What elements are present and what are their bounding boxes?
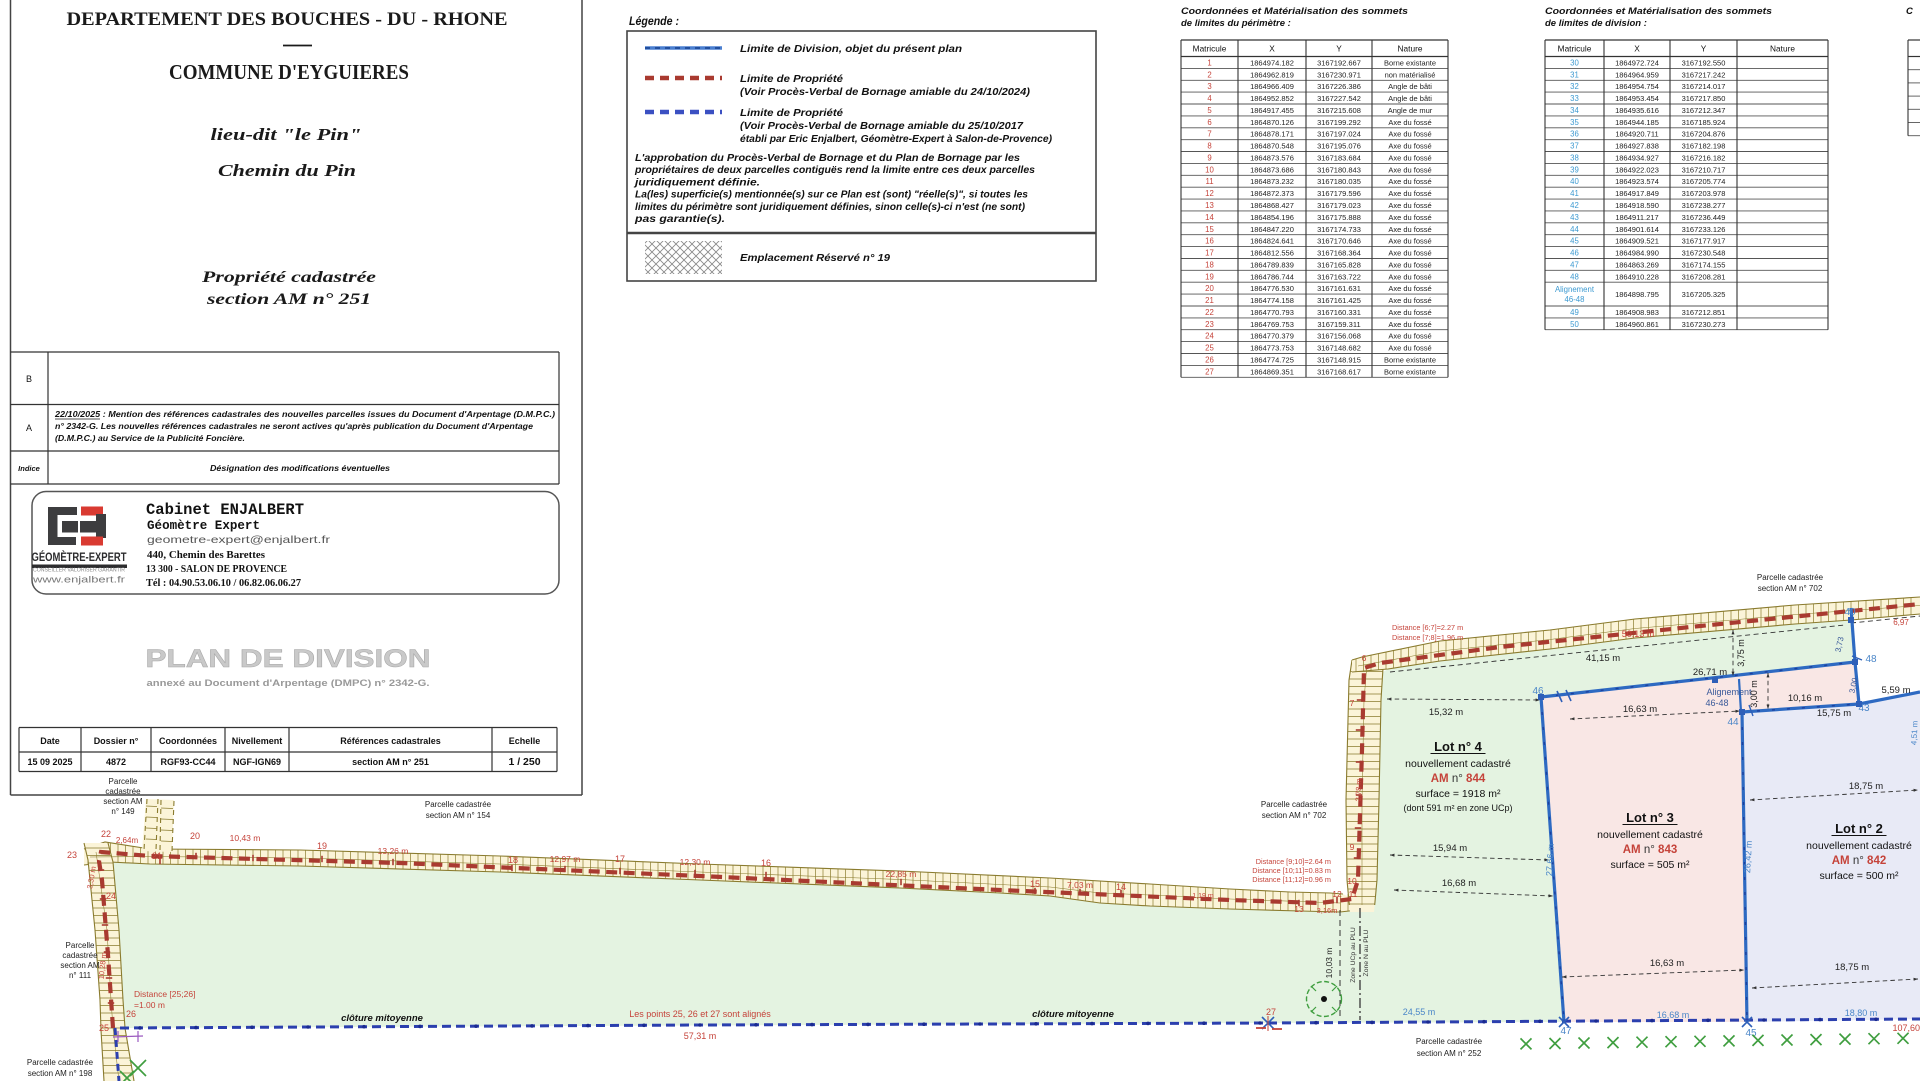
svg-text:1864960.861: 1864960.861 <box>1615 320 1659 329</box>
svg-text:22/10/2025 : Mention des référ: 22/10/2025 : Mention des références cada… <box>54 409 555 419</box>
svg-text:juridiquement définie.: juridiquement définie. <box>633 177 760 188</box>
svg-text:pas garantie(s).: pas garantie(s). <box>634 214 725 225</box>
svg-text:section AM n° 702: section AM n° 702 <box>1262 811 1327 820</box>
svg-text:1864908.983: 1864908.983 <box>1615 308 1659 317</box>
svg-text:16,63 m: 16,63 m <box>1650 958 1684 969</box>
svg-text:2,64m: 2,64m <box>116 836 139 845</box>
svg-text:Lot n° 4: Lot n° 4 <box>1434 739 1483 754</box>
svg-text:1864927.838: 1864927.838 <box>1615 142 1659 151</box>
svg-text:13: 13 <box>1294 904 1304 914</box>
svg-text:1864954.754: 1864954.754 <box>1615 82 1659 91</box>
svg-text:Désignation des modifications: Désignation des modifications éventuelle… <box>210 463 390 473</box>
svg-text:DEPARTEMENT DES BOUCHES -: DEPARTEMENT DES BOUCHES - DU - RHONE <box>67 9 508 30</box>
svg-text:3167236.449: 3167236.449 <box>1682 213 1726 222</box>
svg-text:47: 47 <box>1570 260 1579 269</box>
svg-text:de limites de division :: de limites de division : <box>1545 18 1647 29</box>
svg-text:18: 18 <box>1205 260 1214 269</box>
svg-text:Matricule: Matricule <box>1193 44 1227 54</box>
svg-text:4872: 4872 <box>106 757 126 767</box>
svg-text:10: 10 <box>1205 165 1214 174</box>
svg-text:24: 24 <box>106 891 116 901</box>
svg-text:27,66 m: 27,66 m <box>1544 843 1556 876</box>
svg-text:Géomètre Expert: Géomètre Expert <box>147 518 260 533</box>
svg-text:clôture mitoyenne: clôture mitoyenne <box>341 1013 424 1024</box>
svg-text:13,26 m: 13,26 m <box>378 846 409 856</box>
svg-text:de limites du périmètre :: de limites du périmètre : <box>1181 18 1291 29</box>
svg-text:Parcelle cadastrée: Parcelle cadastrée <box>1416 1037 1483 1046</box>
svg-text:6: 6 <box>1207 118 1211 127</box>
svg-text:Axe du fossé: Axe du fossé <box>1388 130 1431 139</box>
svg-text:Axe du fossé: Axe du fossé <box>1388 177 1431 186</box>
svg-text:3167238.277: 3167238.277 <box>1682 201 1726 210</box>
svg-text:Limite de Propriété: Limite de Propriété <box>740 107 843 119</box>
svg-text:3167195.076: 3167195.076 <box>1317 142 1361 151</box>
svg-text:Légende :: Légende : <box>629 14 679 28</box>
svg-text:Axe du fossé: Axe du fossé <box>1388 272 1431 281</box>
svg-text:Parcelle cadastrée: Parcelle cadastrée <box>27 1058 94 1067</box>
svg-text:9: 9 <box>1207 154 1211 163</box>
svg-text:1864917.849: 1864917.849 <box>1615 189 1659 198</box>
svg-text:Indice: Indice <box>18 464 40 473</box>
svg-text:Parcelle cadastrée: Parcelle cadastrée <box>425 800 492 809</box>
svg-text:3,75 m: 3,75 m <box>1736 639 1746 667</box>
svg-text:4: 4 <box>1207 94 1212 103</box>
svg-text:Y: Y <box>1701 44 1707 54</box>
svg-text:15,32 m: 15,32 m <box>1429 707 1463 718</box>
svg-text:12,30 m: 12,30 m <box>680 857 711 867</box>
svg-text:Alignement: Alignement <box>1555 285 1595 294</box>
svg-text:3167170.646: 3167170.646 <box>1317 237 1361 246</box>
svg-text:1864873.232: 1864873.232 <box>1250 177 1294 186</box>
svg-text:2,78 m: 2,78 m <box>1354 778 1364 801</box>
svg-text:107,60: 107,60 <box>1892 1023 1920 1033</box>
svg-text:Axe du fossé: Axe du fossé <box>1388 189 1431 198</box>
svg-text:Axe du fossé: Axe du fossé <box>1388 213 1431 222</box>
svg-text:Distance [10;11]=0.83 m: Distance [10;11]=0.83 m <box>1252 866 1331 875</box>
svg-text:21: 21 <box>152 851 162 861</box>
svg-text:1864863.269: 1864863.269 <box>1615 260 1659 269</box>
svg-text:18: 18 <box>508 855 518 865</box>
svg-text:1864962.819: 1864962.819 <box>1250 70 1294 79</box>
svg-text:3167180.035: 3167180.035 <box>1317 177 1361 186</box>
svg-text:3167210.717: 3167210.717 <box>1682 165 1726 174</box>
svg-text:3167216.182: 3167216.182 <box>1682 154 1726 163</box>
svg-text:3167212.851: 3167212.851 <box>1682 308 1726 317</box>
svg-text:1864870.126: 1864870.126 <box>1250 118 1294 127</box>
svg-text:23: 23 <box>67 850 77 860</box>
svg-text:16,63 m: 16,63 m <box>1623 704 1657 715</box>
svg-text:3167165.828: 3167165.828 <box>1317 260 1361 269</box>
svg-text:3167199.292: 3167199.292 <box>1317 118 1361 127</box>
svg-text:27: 27 <box>1205 367 1214 376</box>
svg-text:14: 14 <box>1205 213 1214 222</box>
svg-text:1864918.590: 1864918.590 <box>1615 201 1659 210</box>
svg-text:Axe du fossé: Axe du fossé <box>1388 249 1431 258</box>
svg-text:30: 30 <box>1570 58 1579 67</box>
svg-text:50: 50 <box>1570 320 1579 329</box>
svg-text:Zone UCp au PLU: Zone UCp au PLU <box>1350 927 1357 983</box>
svg-text:15: 15 <box>1205 225 1214 234</box>
svg-text:3167214.017: 3167214.017 <box>1682 82 1726 91</box>
svg-text:3167205.774: 3167205.774 <box>1682 177 1726 186</box>
svg-text:Emplacement Réservé n° 19: Emplacement Réservé n° 19 <box>740 252 890 264</box>
svg-text:11: 11 <box>1349 889 1358 899</box>
svg-text:COMMUNE D'EYGUIERES: COMMUNE D'EYGUIERES <box>169 60 409 84</box>
svg-text:(dont 591 m² en zone UCp): (dont 591 m² en zone UCp) <box>1403 803 1512 813</box>
svg-text:7: 7 <box>1207 130 1211 139</box>
svg-text:48: 48 <box>1865 654 1877 665</box>
svg-text:Axe du fossé: Axe du fossé <box>1388 225 1431 234</box>
svg-text:section AM: section AM <box>60 961 99 970</box>
svg-text:1864953.454: 1864953.454 <box>1615 94 1659 103</box>
svg-text:3167179.023: 3167179.023 <box>1317 201 1361 210</box>
svg-text:3167205.325: 3167205.325 <box>1682 290 1726 299</box>
svg-text:Distance [9;10]=2.64 m: Distance [9;10]=2.64 m <box>1256 857 1331 866</box>
svg-text:Parcelle: Parcelle <box>66 941 95 950</box>
svg-text:1864870.548: 1864870.548 <box>1250 142 1294 151</box>
svg-text:3167197.024: 3167197.024 <box>1317 130 1361 139</box>
svg-text:48: 48 <box>1570 272 1579 281</box>
svg-text:10,03 m: 10,03 m <box>1324 948 1334 979</box>
svg-text:geometre-expert@enjalbert.fr: geometre-expert@enjalbert.fr <box>147 534 331 546</box>
svg-text:Les points 25, 26 et 27 sont a: Les points 25, 26 et 27 sont alignés <box>629 1009 771 1019</box>
svg-text:3167185.924: 3167185.924 <box>1682 118 1726 127</box>
svg-text:Dossier n°: Dossier n° <box>94 736 139 746</box>
svg-text:3167159.311: 3167159.311 <box>1317 320 1360 329</box>
svg-text:3167148.915: 3167148.915 <box>1317 355 1361 364</box>
svg-text:nouvellement cadastré: nouvellement cadastré <box>1597 829 1703 841</box>
svg-text:6: 6 <box>1362 653 1367 663</box>
svg-text:38: 38 <box>1570 154 1579 163</box>
svg-text:Borne existante: Borne existante <box>1384 58 1436 67</box>
svg-text:2: 2 <box>1207 70 1211 79</box>
svg-text:n° 2342-G. Les nouvelles référ: n° 2342-G. Les nouvelles références cada… <box>55 421 533 431</box>
svg-text:3167226.386: 3167226.386 <box>1317 82 1361 91</box>
svg-text:3167161.631: 3167161.631 <box>1317 284 1361 293</box>
svg-text:5,59 m: 5,59 m <box>1881 685 1910 696</box>
svg-text:35: 35 <box>1570 118 1579 127</box>
svg-text:5: 5 <box>1207 106 1212 115</box>
svg-text:9: 9 <box>1350 842 1355 852</box>
svg-text:3167230.971: 3167230.971 <box>1317 70 1361 79</box>
svg-text:41: 41 <box>1570 189 1579 198</box>
svg-text:1864868.427: 1864868.427 <box>1250 201 1294 210</box>
svg-text:3167161.425: 3167161.425 <box>1317 296 1361 305</box>
svg-text:16: 16 <box>761 858 771 868</box>
svg-text:Lot n° 3: Lot n° 3 <box>1626 810 1674 825</box>
svg-text:16: 16 <box>1205 237 1214 246</box>
svg-text:(D.M.P.C.) au Service de la Pu: (D.M.P.C.) au Service de la Publicité Fo… <box>55 433 245 443</box>
svg-text:Axe du fossé: Axe du fossé <box>1388 284 1431 293</box>
svg-text:19: 19 <box>317 841 327 851</box>
svg-text:3167168.364: 3167168.364 <box>1317 249 1361 258</box>
svg-text:GÉOMÈTRE-EXPERT: GÉOMÈTRE-EXPERT <box>32 551 127 564</box>
svg-text:12: 12 <box>1332 889 1342 899</box>
svg-text:Zone N au PLU: Zone N au PLU <box>1363 929 1370 976</box>
svg-text:Axe du fossé: Axe du fossé <box>1388 154 1431 163</box>
svg-text:Axe du fossé: Axe du fossé <box>1388 332 1431 341</box>
svg-text:clôture mitoyenne: clôture mitoyenne <box>1032 1009 1115 1020</box>
svg-text:3167215.608: 3167215.608 <box>1317 106 1361 115</box>
svg-text:section AM n° 154: section AM n° 154 <box>426 811 491 820</box>
svg-text:1: 1 <box>1207 58 1211 67</box>
svg-text:25: 25 <box>1205 344 1214 353</box>
svg-text:23: 23 <box>1205 320 1214 329</box>
svg-text:40: 40 <box>1570 177 1579 186</box>
svg-text:1864909.521: 1864909.521 <box>1615 237 1659 246</box>
svg-text:12: 12 <box>1205 189 1214 198</box>
svg-text:1864966.409: 1864966.409 <box>1250 82 1294 91</box>
svg-text:1864922.023: 1864922.023 <box>1615 165 1659 174</box>
svg-text:50,13 m: 50,13 m <box>1622 629 1655 639</box>
svg-text:n° 149: n° 149 <box>111 807 135 816</box>
svg-text:AM n° 843: AM n° 843 <box>1623 844 1677 856</box>
svg-text:1864972.724: 1864972.724 <box>1615 58 1659 67</box>
svg-text:3167183.684: 3167183.684 <box>1317 154 1361 163</box>
svg-text:3167177.917: 3167177.917 <box>1682 237 1726 246</box>
svg-text:15 09 2025: 15 09 2025 <box>27 757 72 767</box>
svg-text:10,16 m: 10,16 m <box>1788 693 1822 704</box>
svg-text:1864984.990: 1864984.990 <box>1615 249 1659 258</box>
svg-text:24,55 m: 24,55 m <box>1403 1007 1436 1017</box>
svg-text:1864774.158: 1864774.158 <box>1250 296 1294 305</box>
svg-text:section AM n° 252: section AM n° 252 <box>1417 1049 1482 1058</box>
svg-text:20: 20 <box>1205 284 1214 293</box>
svg-text:37: 37 <box>1570 142 1579 151</box>
svg-text:(Voir Procès-Verbal de Bornage: (Voir Procès-Verbal de Bornage amiable d… <box>740 120 1024 132</box>
svg-text:3167175.888: 3167175.888 <box>1317 213 1361 222</box>
svg-text:3167204.876: 3167204.876 <box>1682 130 1726 139</box>
svg-text:1864773.753: 1864773.753 <box>1250 344 1294 353</box>
svg-text:57,31 m: 57,31 m <box>684 1031 717 1041</box>
svg-text:3167217.850: 3167217.850 <box>1682 94 1726 103</box>
svg-text:39: 39 <box>1570 165 1579 174</box>
svg-text:3: 3 <box>1207 82 1211 91</box>
svg-text:X: X <box>1634 44 1640 54</box>
svg-text:Distance [25;26]: Distance [25;26] <box>134 989 195 999</box>
svg-text:1864944.185: 1864944.185 <box>1615 118 1659 127</box>
svg-text:cadastrée: cadastrée <box>62 951 98 960</box>
svg-text:26,42 m: 26,42 m <box>1742 840 1754 873</box>
svg-text:1864974.182: 1864974.182 <box>1250 58 1294 67</box>
svg-text:Nature: Nature <box>1770 44 1795 54</box>
svg-text:www.enjalbert.fr: www.enjalbert.fr <box>32 575 125 585</box>
svg-text:surface = 500 m²: surface = 500 m² <box>1819 870 1899 882</box>
svg-text:45: 45 <box>1570 237 1579 246</box>
svg-text:47: 47 <box>1560 1026 1572 1037</box>
svg-text:7: 7 <box>1350 698 1355 708</box>
svg-text:3167174.155: 3167174.155 <box>1682 260 1726 269</box>
svg-text:31: 31 <box>1570 70 1579 79</box>
svg-text:Echelle: Echelle <box>509 736 541 746</box>
svg-text:X: X <box>1269 44 1275 54</box>
svg-text:1864854.196: 1864854.196 <box>1250 213 1294 222</box>
svg-text:3167180.843: 3167180.843 <box>1317 165 1361 174</box>
svg-text:Coordonnées et Matérialisation: Coordonnées et Matérialisation des somme… <box>1181 6 1408 17</box>
svg-text:Nivellement: Nivellement <box>232 736 283 746</box>
svg-text:Parcelle cadastrée: Parcelle cadastrée <box>1261 800 1328 809</box>
svg-text:Lot n° 2: Lot n° 2 <box>1835 821 1883 836</box>
svg-text:surface = 505 m²: surface = 505 m² <box>1610 859 1690 871</box>
svg-text:26,71 m: 26,71 m <box>1693 667 1727 678</box>
svg-text:1864873.576: 1864873.576 <box>1250 154 1294 163</box>
svg-text:1864776.530: 1864776.530 <box>1250 284 1294 293</box>
svg-text:34: 34 <box>1570 106 1579 115</box>
svg-text:18,80 m: 18,80 m <box>1845 1008 1878 1018</box>
svg-text:3167227.542: 3167227.542 <box>1317 94 1361 103</box>
svg-text:17: 17 <box>615 854 625 864</box>
svg-text:Y: Y <box>1336 44 1342 54</box>
svg-text:4,51 m: 4,51 m <box>1909 720 1919 745</box>
svg-text:46-48: 46-48 <box>1705 698 1728 708</box>
svg-text:14: 14 <box>1116 882 1126 892</box>
svg-text:cadastrée: cadastrée <box>105 787 141 796</box>
svg-text:1,19 m: 1,19 m <box>1192 893 1214 900</box>
svg-text:19: 19 <box>1205 272 1214 281</box>
svg-text:3,16m: 3,16m <box>1317 906 1338 915</box>
svg-text:3167203.978: 3167203.978 <box>1682 189 1726 198</box>
svg-text:1864934.927: 1864934.927 <box>1615 154 1659 163</box>
svg-text:13: 13 <box>1205 201 1214 210</box>
svg-text:(Voir Procès-Verbal de Bornage: (Voir Procès-Verbal de Bornage amiable d… <box>740 86 1031 98</box>
svg-text:36: 36 <box>1570 130 1579 139</box>
svg-text:3167212.347: 3167212.347 <box>1682 106 1726 115</box>
svg-text:3167230.548: 3167230.548 <box>1682 249 1726 258</box>
svg-text:Angle de bâti: Angle de bâti <box>1388 94 1432 103</box>
svg-text:1864923.574: 1864923.574 <box>1615 177 1659 186</box>
svg-text:1 / 250: 1 / 250 <box>508 756 540 768</box>
svg-text:1864911.217: 1864911.217 <box>1615 213 1658 222</box>
svg-text:Parcelle cadastrée: Parcelle cadastrée <box>1757 573 1824 582</box>
svg-text:non matérialisé: non matérialisé <box>1385 70 1436 79</box>
svg-text:10,43 m: 10,43 m <box>230 833 261 843</box>
svg-text:Coordonnées et Matérialisation: Coordonnées et Matérialisation des somme… <box>1545 6 1772 17</box>
svg-text:18,75 m: 18,75 m <box>1835 962 1869 973</box>
svg-text:Limite de Propriété: Limite de Propriété <box>740 73 843 85</box>
svg-text:Axe du fossé: Axe du fossé <box>1388 201 1431 210</box>
svg-text:1864824.641: 1864824.641 <box>1250 237 1294 246</box>
svg-text:3167156.068: 3167156.068 <box>1317 332 1361 341</box>
svg-text:22: 22 <box>1205 308 1214 317</box>
svg-text:Coordonnées: Coordonnées <box>159 736 217 746</box>
svg-text:A: A <box>26 423 32 433</box>
svg-text:Distance [7;8]=1.96 m: Distance [7;8]=1.96 m <box>1392 633 1463 642</box>
svg-text:26: 26 <box>1205 355 1214 364</box>
svg-text:Limite de Division, objet du p: Limite de Division, objet du présent pla… <box>740 43 962 55</box>
svg-text:Matricule: Matricule <box>1558 44 1592 54</box>
svg-text:6,97: 6,97 <box>1893 618 1909 627</box>
svg-text:Borne existante: Borne existante <box>1384 355 1436 364</box>
svg-text:Cabinet ENJALBERT: Cabinet ENJALBERT <box>146 501 304 519</box>
svg-text:Axe du fossé: Axe du fossé <box>1388 308 1431 317</box>
svg-text:section AM n° 251: section AM n° 251 <box>206 291 371 308</box>
svg-text:1864901.614: 1864901.614 <box>1615 225 1659 234</box>
svg-text:3167192.550: 3167192.550 <box>1682 58 1726 67</box>
svg-text:43: 43 <box>1570 213 1579 222</box>
svg-text:section AM n° 251: section AM n° 251 <box>352 757 429 767</box>
svg-text:20: 20 <box>190 831 200 841</box>
svg-text:L'approbation du Procès-Verbal: L'approbation du Procès-Verbal de Bornag… <box>635 153 1020 164</box>
svg-text:Axe du fossé: Axe du fossé <box>1388 237 1431 246</box>
svg-text:Alignement: Alignement <box>1706 687 1752 697</box>
svg-text:nouvellement cadastré: nouvellement cadastré <box>1806 840 1912 852</box>
svg-text:1864878.171: 1864878.171 <box>1250 130 1294 139</box>
svg-text:CONSEILLER VALORISER GARANTIR: CONSEILLER VALORISER GARANTIR <box>33 568 125 574</box>
svg-text:nouvellement cadastré: nouvellement cadastré <box>1405 758 1511 770</box>
svg-text:44: 44 <box>1570 225 1579 234</box>
svg-text:Angle de mur: Angle de mur <box>1388 106 1433 115</box>
svg-text:12,97 m: 12,97 m <box>550 854 581 864</box>
svg-text:section AM n° 702: section AM n° 702 <box>1758 584 1823 593</box>
svg-text:3167182.198: 3167182.198 <box>1682 142 1726 151</box>
svg-text:3167208.281: 3167208.281 <box>1682 272 1726 281</box>
svg-text:1864917.455: 1864917.455 <box>1250 106 1294 115</box>
svg-text:1864869.351: 1864869.351 <box>1250 367 1294 376</box>
svg-text:1864898.795: 1864898.795 <box>1615 290 1659 299</box>
svg-text:lieu-dit "le Pin": lieu-dit "le Pin" <box>211 125 362 144</box>
svg-text:Axe du fossé: Axe du fossé <box>1388 118 1431 127</box>
svg-text:1864770.379: 1864770.379 <box>1250 332 1294 341</box>
svg-text:1864812.556: 1864812.556 <box>1250 249 1294 258</box>
svg-text:49: 49 <box>1570 308 1579 317</box>
svg-text:25: 25 <box>99 1023 109 1033</box>
svg-text:17: 17 <box>1205 249 1214 258</box>
svg-text:13 300 - SALON DE PROVENCE: 13 300 - SALON DE PROVENCE <box>146 563 287 575</box>
svg-text:NGF-IGN69: NGF-IGN69 <box>233 757 281 767</box>
svg-text:Chemin du Pin: Chemin du Pin <box>218 161 356 180</box>
svg-text:Références cadastrales: Références cadastrales <box>340 736 441 746</box>
svg-text:3167163.722: 3167163.722 <box>1317 272 1361 281</box>
svg-text:1864774.725: 1864774.725 <box>1250 355 1294 364</box>
svg-text:7,03 m: 7,03 m <box>1067 880 1093 890</box>
svg-text:1864952.852: 1864952.852 <box>1250 94 1294 103</box>
svg-text:RGF93-CC44: RGF93-CC44 <box>160 757 215 767</box>
svg-text:1864920.711: 1864920.711 <box>1615 130 1658 139</box>
svg-text:C: C <box>1906 6 1913 17</box>
svg-text:3167217.242: 3167217.242 <box>1682 70 1726 79</box>
svg-text:Axe du fossé: Axe du fossé <box>1388 320 1431 329</box>
svg-text:3167230.273: 3167230.273 <box>1682 320 1726 329</box>
svg-text:propriétaires de deux parcelle: propriétaires de deux parcelles contiguë… <box>634 165 1035 176</box>
svg-text:1864964.959: 1864964.959 <box>1615 70 1659 79</box>
svg-text:Axe du fossé: Axe du fossé <box>1388 344 1431 353</box>
svg-text:surface = 1918 m²: surface = 1918 m² <box>1416 788 1501 800</box>
svg-text:18,75 m: 18,75 m <box>1849 781 1883 792</box>
svg-text:42: 42 <box>1570 201 1579 210</box>
svg-text:établi par Eric Enjalbert, Géo: établi par Eric Enjalbert, Géomètre-Expe… <box>740 133 1052 145</box>
svg-text:3167179.596: 3167179.596 <box>1317 189 1361 198</box>
svg-text:1864872.373: 1864872.373 <box>1250 189 1294 198</box>
svg-text:Parcelle: Parcelle <box>109 777 138 786</box>
svg-text:1864769.753: 1864769.753 <box>1250 320 1294 329</box>
svg-text:27: 27 <box>1266 1007 1276 1017</box>
svg-text:Angle de bâti: Angle de bâti <box>1388 82 1432 91</box>
svg-text:limites du périmètre sont juri: limites du périmètre sont juridiquement … <box>635 202 1026 213</box>
svg-text:32: 32 <box>1570 82 1579 91</box>
svg-text:Axe du fossé: Axe du fossé <box>1388 165 1431 174</box>
svg-text:1864847.220: 1864847.220 <box>1250 225 1294 234</box>
svg-text:Axe du fossé: Axe du fossé <box>1388 142 1431 151</box>
svg-text:1864910.228: 1864910.228 <box>1615 272 1659 281</box>
svg-text:41,15 m: 41,15 m <box>1586 653 1620 664</box>
svg-text:Tél : 04.90.53.06.10 / 06.82.0: Tél : 04.90.53.06.10 / 06.82.06.06.27 <box>146 578 301 589</box>
svg-text:Propriété cadastrée: Propriété cadastrée <box>201 269 376 286</box>
svg-text:22,85 m: 22,85 m <box>886 869 917 879</box>
svg-text:46-48: 46-48 <box>1565 295 1585 304</box>
svg-text:15,75 m: 15,75 m <box>1817 708 1851 719</box>
svg-text:15: 15 <box>1030 879 1040 889</box>
svg-text:10: 10 <box>1347 876 1357 886</box>
